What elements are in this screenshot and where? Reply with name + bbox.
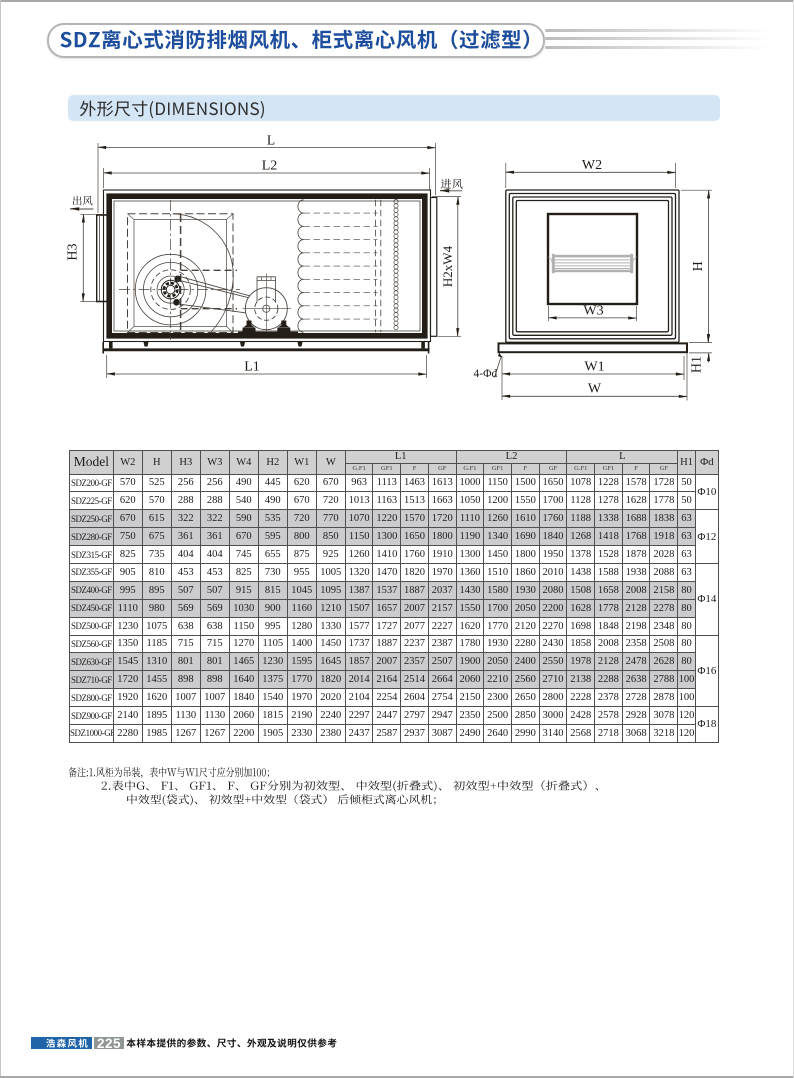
svg-text:W2: W2 (582, 158, 602, 173)
svg-text:4-Φd: 4-Φd (474, 368, 498, 380)
svg-text:H1: H1 (690, 356, 705, 373)
svg-text:L1: L1 (244, 360, 260, 375)
svg-text:H: H (691, 261, 706, 271)
svg-text:H3: H3 (66, 243, 81, 260)
svg-text:W3: W3 (583, 304, 603, 319)
svg-text:L: L (267, 133, 275, 148)
svg-text:H2xW4: H2xW4 (440, 245, 455, 287)
svg-text:W: W (588, 382, 602, 397)
svg-text:W1: W1 (584, 360, 604, 375)
svg-text:L2: L2 (262, 159, 278, 174)
